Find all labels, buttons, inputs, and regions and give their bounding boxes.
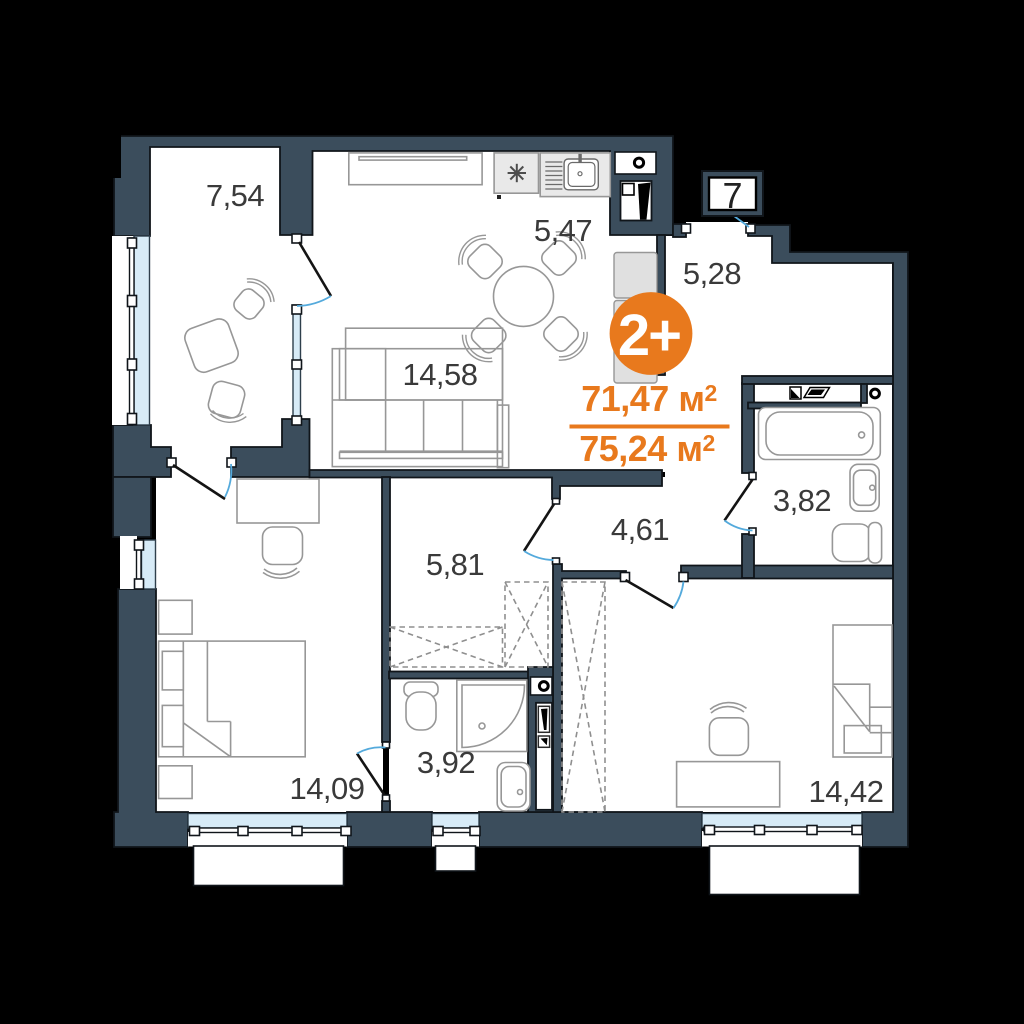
- svg-text:75,24 м2: 75,24 м2: [579, 428, 715, 469]
- svg-text:7,54: 7,54: [206, 178, 265, 213]
- svg-text:5,81: 5,81: [426, 547, 484, 582]
- svg-text:5,28: 5,28: [683, 256, 741, 291]
- svg-text:5,47: 5,47: [534, 213, 592, 248]
- svg-text:14,09: 14,09: [289, 771, 364, 806]
- svg-text:14,58: 14,58: [402, 357, 477, 392]
- svg-text:7: 7: [722, 175, 742, 216]
- svg-text:14,42: 14,42: [808, 774, 883, 809]
- svg-text:3,92: 3,92: [417, 745, 475, 780]
- svg-text:2+: 2+: [618, 303, 680, 368]
- svg-text:3,82: 3,82: [773, 483, 831, 518]
- svg-text:71,47 м2: 71,47 м2: [581, 378, 717, 419]
- svg-text:4,61: 4,61: [611, 512, 669, 547]
